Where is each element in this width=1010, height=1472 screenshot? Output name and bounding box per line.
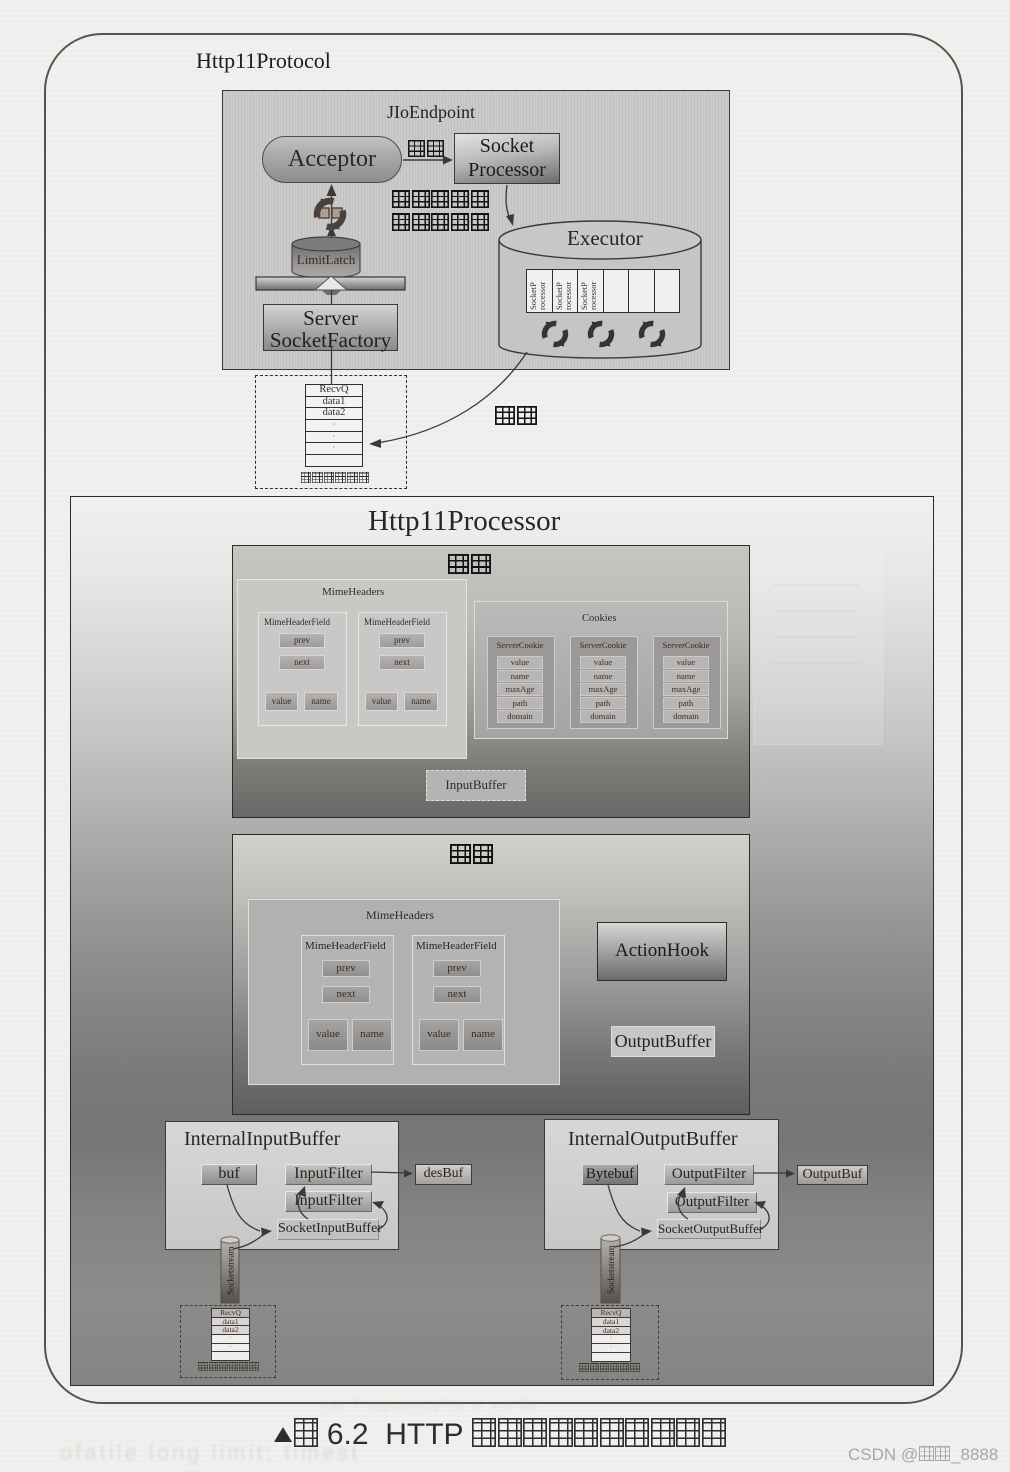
svg-text:Socketstream: Socketstream [606,1246,616,1295]
svg-text:Socketstream: Socketstream [226,1247,236,1296]
